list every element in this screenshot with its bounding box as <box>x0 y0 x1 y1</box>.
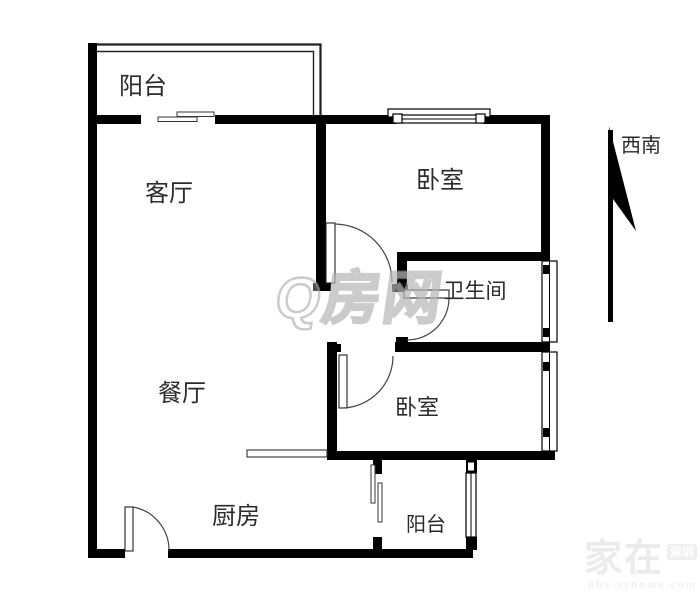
wall-balcony2-partition-bottom <box>373 537 382 558</box>
wall-bottom-left <box>88 549 125 558</box>
counter-line <box>247 450 327 457</box>
label-bedroom-bottom: 卧室 <box>395 395 439 420</box>
wall-balcony-bottom-a <box>97 115 141 124</box>
door-bathroom <box>404 290 449 340</box>
wall-bedroom1-left <box>316 115 326 285</box>
door-kitchen <box>125 507 169 551</box>
wall-cap-bedroom1 <box>313 283 331 291</box>
window-bedroom1-top <box>388 109 490 123</box>
label-compass-southwest: 西南 <box>621 134 661 157</box>
wall-top-right <box>483 115 550 124</box>
label-balcony-bottom: 阳台 <box>406 513 446 536</box>
label-kitchen: 厨房 <box>212 503 260 530</box>
window-bedroom2-right <box>542 352 557 451</box>
label-balcony-top: 阳台 <box>119 73 167 100</box>
label-bedroom-top: 卧室 <box>416 167 464 194</box>
window-bathroom-right <box>542 261 557 342</box>
wall-cap-bathroom-lower <box>396 337 408 346</box>
wall-bedroom2-left <box>327 342 337 460</box>
sliding-door-balcony-top <box>158 112 214 122</box>
wall-balcony2-window-stub-bottom <box>466 537 477 550</box>
label-bathroom: 卫生间 <box>444 279 507 303</box>
wall-right-upper <box>541 115 550 261</box>
label-living-room: 客厅 <box>145 180 193 207</box>
wall-balcony-bottom-b <box>215 115 396 124</box>
room-labels: 阳台 客厅 卧室 卫生间 餐厅 卧室 厨房 阳台 西南 <box>119 73 661 536</box>
floor-plan-canvas: 阳台 客厅 卧室 卫生间 餐厅 卧室 厨房 阳台 西南 Q房网 家在 深圳 bb… <box>0 0 700 595</box>
door-bedroom1 <box>326 223 392 283</box>
wall-left <box>88 43 97 558</box>
wall-bathroom-left-upper <box>397 252 407 286</box>
wall-bathroom-bottom <box>395 342 550 352</box>
window-balcony2-right <box>466 462 476 537</box>
wall-cap-bedroom2 <box>327 344 341 352</box>
label-dining-room: 餐厅 <box>158 380 206 407</box>
wall-bottom-main <box>168 549 473 558</box>
door-bedroom2 <box>339 355 393 408</box>
floor-plan-drawing: 阳台 客厅 卧室 卫生间 餐厅 卧室 厨房 阳台 西南 <box>0 0 700 595</box>
wall-bedroom2-bottom <box>330 451 555 460</box>
wall-bathroom-top <box>400 252 541 261</box>
